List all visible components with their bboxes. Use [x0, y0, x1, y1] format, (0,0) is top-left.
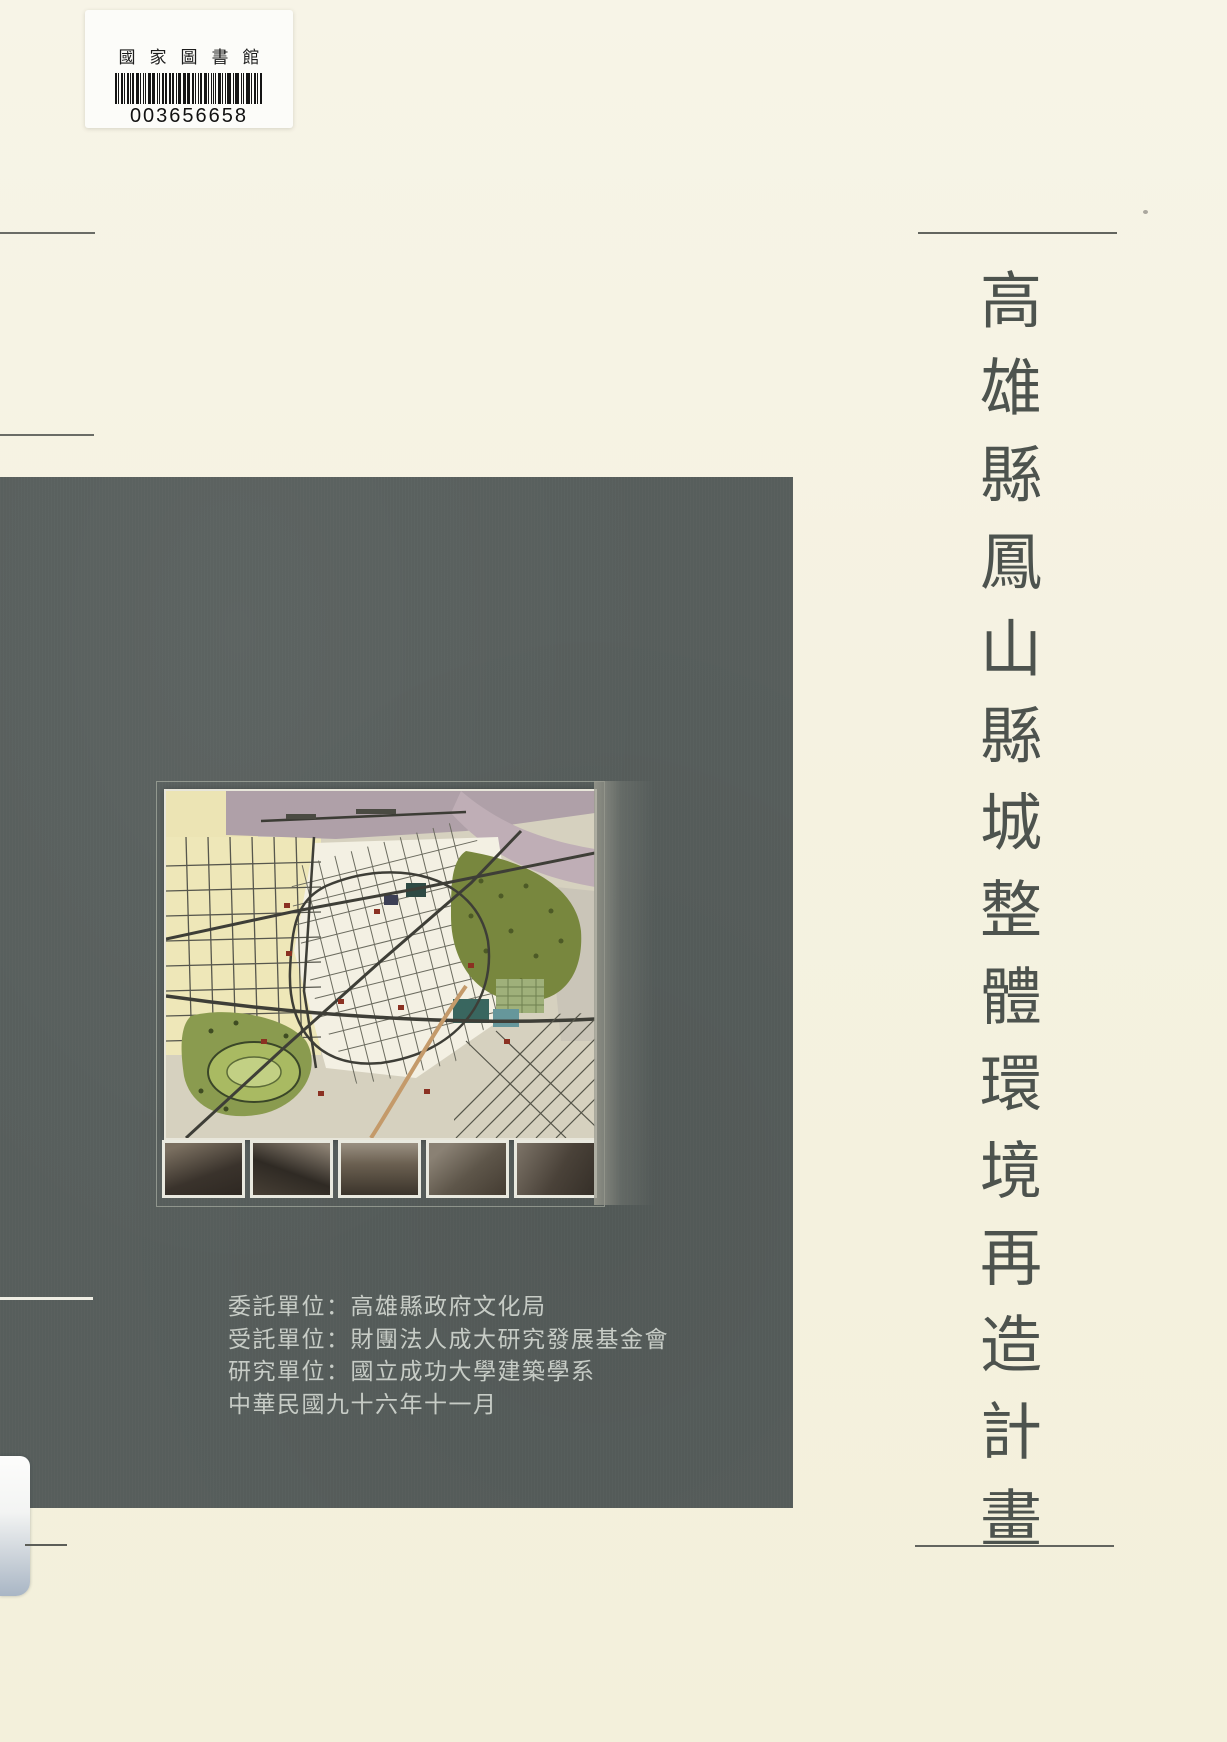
map-frame — [164, 789, 597, 1140]
credit-line-date: 中華民國九十六年十一月 — [228, 1389, 669, 1422]
credit-line-trustee: 受託單位：財團法人成大研究發展基金會 — [228, 1324, 669, 1357]
reg-mark-top-left-1 — [0, 232, 95, 234]
credit-line-research-unit: 研究單位：國立成功大學建築學系 — [228, 1356, 669, 1389]
city-plan-map — [166, 791, 595, 1138]
map-scan-fade — [594, 781, 654, 1205]
credit-line-commissioner: 委託單位：高雄縣政府文化局 — [228, 1291, 669, 1324]
credits-block: 委託單位：高雄縣政府文化局 受託單位：財團法人成大研究發展基金會 研究單位：國立… — [228, 1291, 669, 1421]
title-rule-bottom — [915, 1545, 1114, 1547]
photo-strip — [162, 1140, 599, 1200]
spine-tab — [0, 1456, 30, 1596]
scan-speck — [1143, 210, 1148, 214]
photo — [426, 1140, 509, 1198]
photo — [338, 1140, 421, 1198]
vertical-title: 高雄縣鳳山縣城整體環境再造計畫 — [980, 268, 1050, 1538]
barcode — [100, 73, 278, 104]
reg-mark-top-left-2 — [0, 434, 94, 436]
library-name: 國家圖書館 — [105, 43, 274, 68]
reg-mark-bottom-left — [25, 1544, 67, 1546]
photo — [162, 1140, 245, 1198]
reg-mark-panel — [0, 1297, 93, 1300]
title-rule-top — [918, 232, 1117, 234]
book-cover-scan: { "document": { "kind": "scanned-book-co… — [0, 0, 1227, 1742]
library-barcode-label: 國家圖書館 003656658 — [85, 10, 293, 128]
barcode-number: 003656658 — [130, 105, 248, 128]
photo — [250, 1140, 333, 1198]
photo — [514, 1140, 597, 1198]
